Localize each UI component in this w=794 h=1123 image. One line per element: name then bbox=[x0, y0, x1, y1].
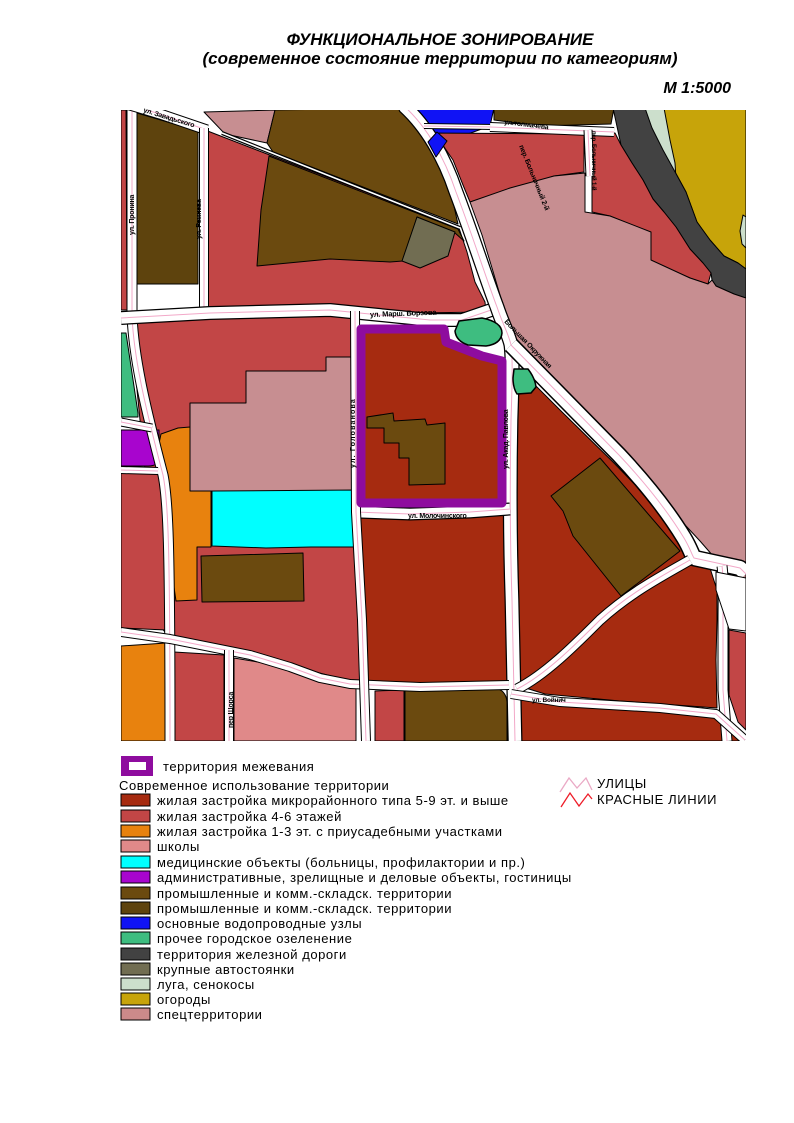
svg-text:ул. Войнич: ул. Войнич bbox=[532, 696, 566, 704]
svg-text:прочее городское озеленение: прочее городское озеленение bbox=[157, 931, 352, 946]
svg-text:основные водопроводные узлы: основные водопроводные узлы bbox=[157, 916, 362, 931]
svg-text:жилая застройка 1-3 эт. с при: жилая застройка 1-3 эт. с приусадебными … bbox=[157, 824, 503, 839]
svg-text:жилая застройка 4-6 этажей: жилая застройка 4-6 этажей bbox=[157, 809, 342, 824]
svg-text:ул. Пронина: ул. Пронина bbox=[129, 195, 136, 235]
svg-text:промышленные и комм.-складск.: промышленные и комм.-складск. территории bbox=[157, 886, 452, 901]
svg-text:Современное использование терр: Современное использование территории bbox=[119, 778, 389, 793]
svg-text:ул. Акад. Павлова: ул. Акад. Павлова bbox=[503, 409, 510, 469]
svg-text:КРАСНЫЕ ЛИНИИ: КРАСНЫЕ ЛИНИИ bbox=[597, 792, 717, 807]
svg-text:административные, зрелищные и: административные, зрелищные и деловые об… bbox=[157, 870, 572, 885]
svg-text:ул. Голованова: ул. Голованова bbox=[350, 398, 357, 468]
svg-text:пер Щорса: пер Щорса bbox=[228, 692, 235, 728]
svg-text:огороды: огороды bbox=[157, 992, 211, 1007]
svg-text:ул. Молочинского: ул. Молочинского bbox=[408, 513, 467, 520]
svg-text:территория железной дороги: территория железной дороги bbox=[157, 947, 347, 962]
svg-text:территория межевания: территория межевания bbox=[163, 759, 314, 774]
svg-text:медицинские объекты (больницы,: медицинские объекты (больницы, профилакт… bbox=[157, 855, 525, 870]
svg-text:школы: школы bbox=[157, 839, 200, 854]
svg-text:луга, сенокосы: луга, сенокосы bbox=[157, 977, 255, 992]
svg-text:жилая застройка микрорайонного: жилая застройка микрорайонного типа 5-9 … bbox=[157, 793, 509, 808]
svg-text:спецтерритории: спецтерритории bbox=[157, 1007, 262, 1022]
svg-text:ул. Ремнева: ул. Ремнева bbox=[196, 199, 203, 239]
svg-text:крупные автостоянки: крупные автостоянки bbox=[157, 962, 295, 977]
svg-text:промышленные и комм.-складск.: промышленные и комм.-складск. территории bbox=[157, 901, 452, 916]
svg-text:пер. Больничный 1-й: пер. Больничный 1-й bbox=[590, 131, 597, 191]
svg-text:УЛИЦЫ: УЛИЦЫ bbox=[597, 776, 647, 791]
